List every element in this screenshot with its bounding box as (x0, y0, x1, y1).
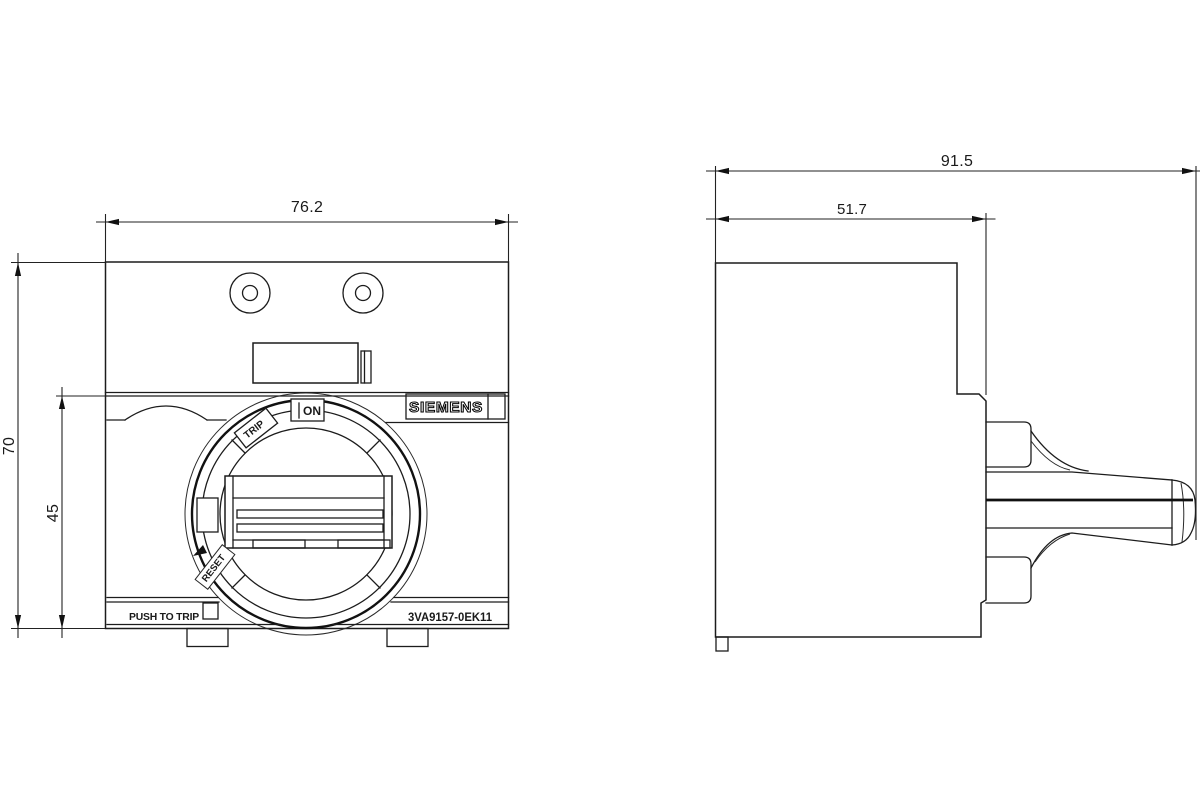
rotary-operator-drawing: 76.2 70 45 91.5 51.7 SIEMENS ON TRIP RES… (0, 0, 1200, 800)
dimension-front-height (11, 253, 105, 638)
side-foot (716, 637, 728, 651)
front-lower-height-value: 45 (45, 504, 62, 522)
side-total-depth-value: 91.5 (941, 153, 973, 170)
front-view (106, 262, 509, 647)
mounting-boss-left (230, 273, 270, 313)
push-to-trip-label: PUSH TO TRIP (129, 611, 199, 623)
reset-arrow-icon (193, 545, 207, 556)
dimension-side-total-depth (706, 166, 1200, 540)
label-window (253, 343, 371, 383)
dimension-front-lower-height (56, 387, 105, 638)
brand-label: SIEMENS (409, 400, 483, 416)
dimension-front-width (96, 214, 518, 262)
handle-grip (197, 476, 392, 548)
grip-body (225, 476, 392, 548)
bottom-tab-left (187, 629, 228, 647)
side-body-depth-value: 51.7 (837, 201, 867, 218)
side-view (716, 263, 1196, 651)
bottom-tab-right (387, 629, 428, 647)
technical-drawing-canvas: 76.2 70 45 91.5 51.7 SIEMENS ON TRIP RES… (0, 0, 1200, 800)
side-handle (986, 422, 1196, 603)
part-number-label: 3VA9157-0EK11 (408, 612, 493, 624)
side-body-outline (716, 263, 987, 637)
grip-hub (197, 498, 218, 532)
mounting-boss-right (343, 273, 383, 313)
push-to-trip-button (203, 603, 218, 619)
dial-on-label: ON (303, 404, 321, 418)
front-body-outline (106, 262, 509, 629)
dimension-side-body-depth (706, 213, 996, 395)
front-width-value: 76.2 (291, 199, 323, 216)
front-height-value: 70 (1, 437, 18, 455)
bezel-left-contour (107, 406, 226, 420)
